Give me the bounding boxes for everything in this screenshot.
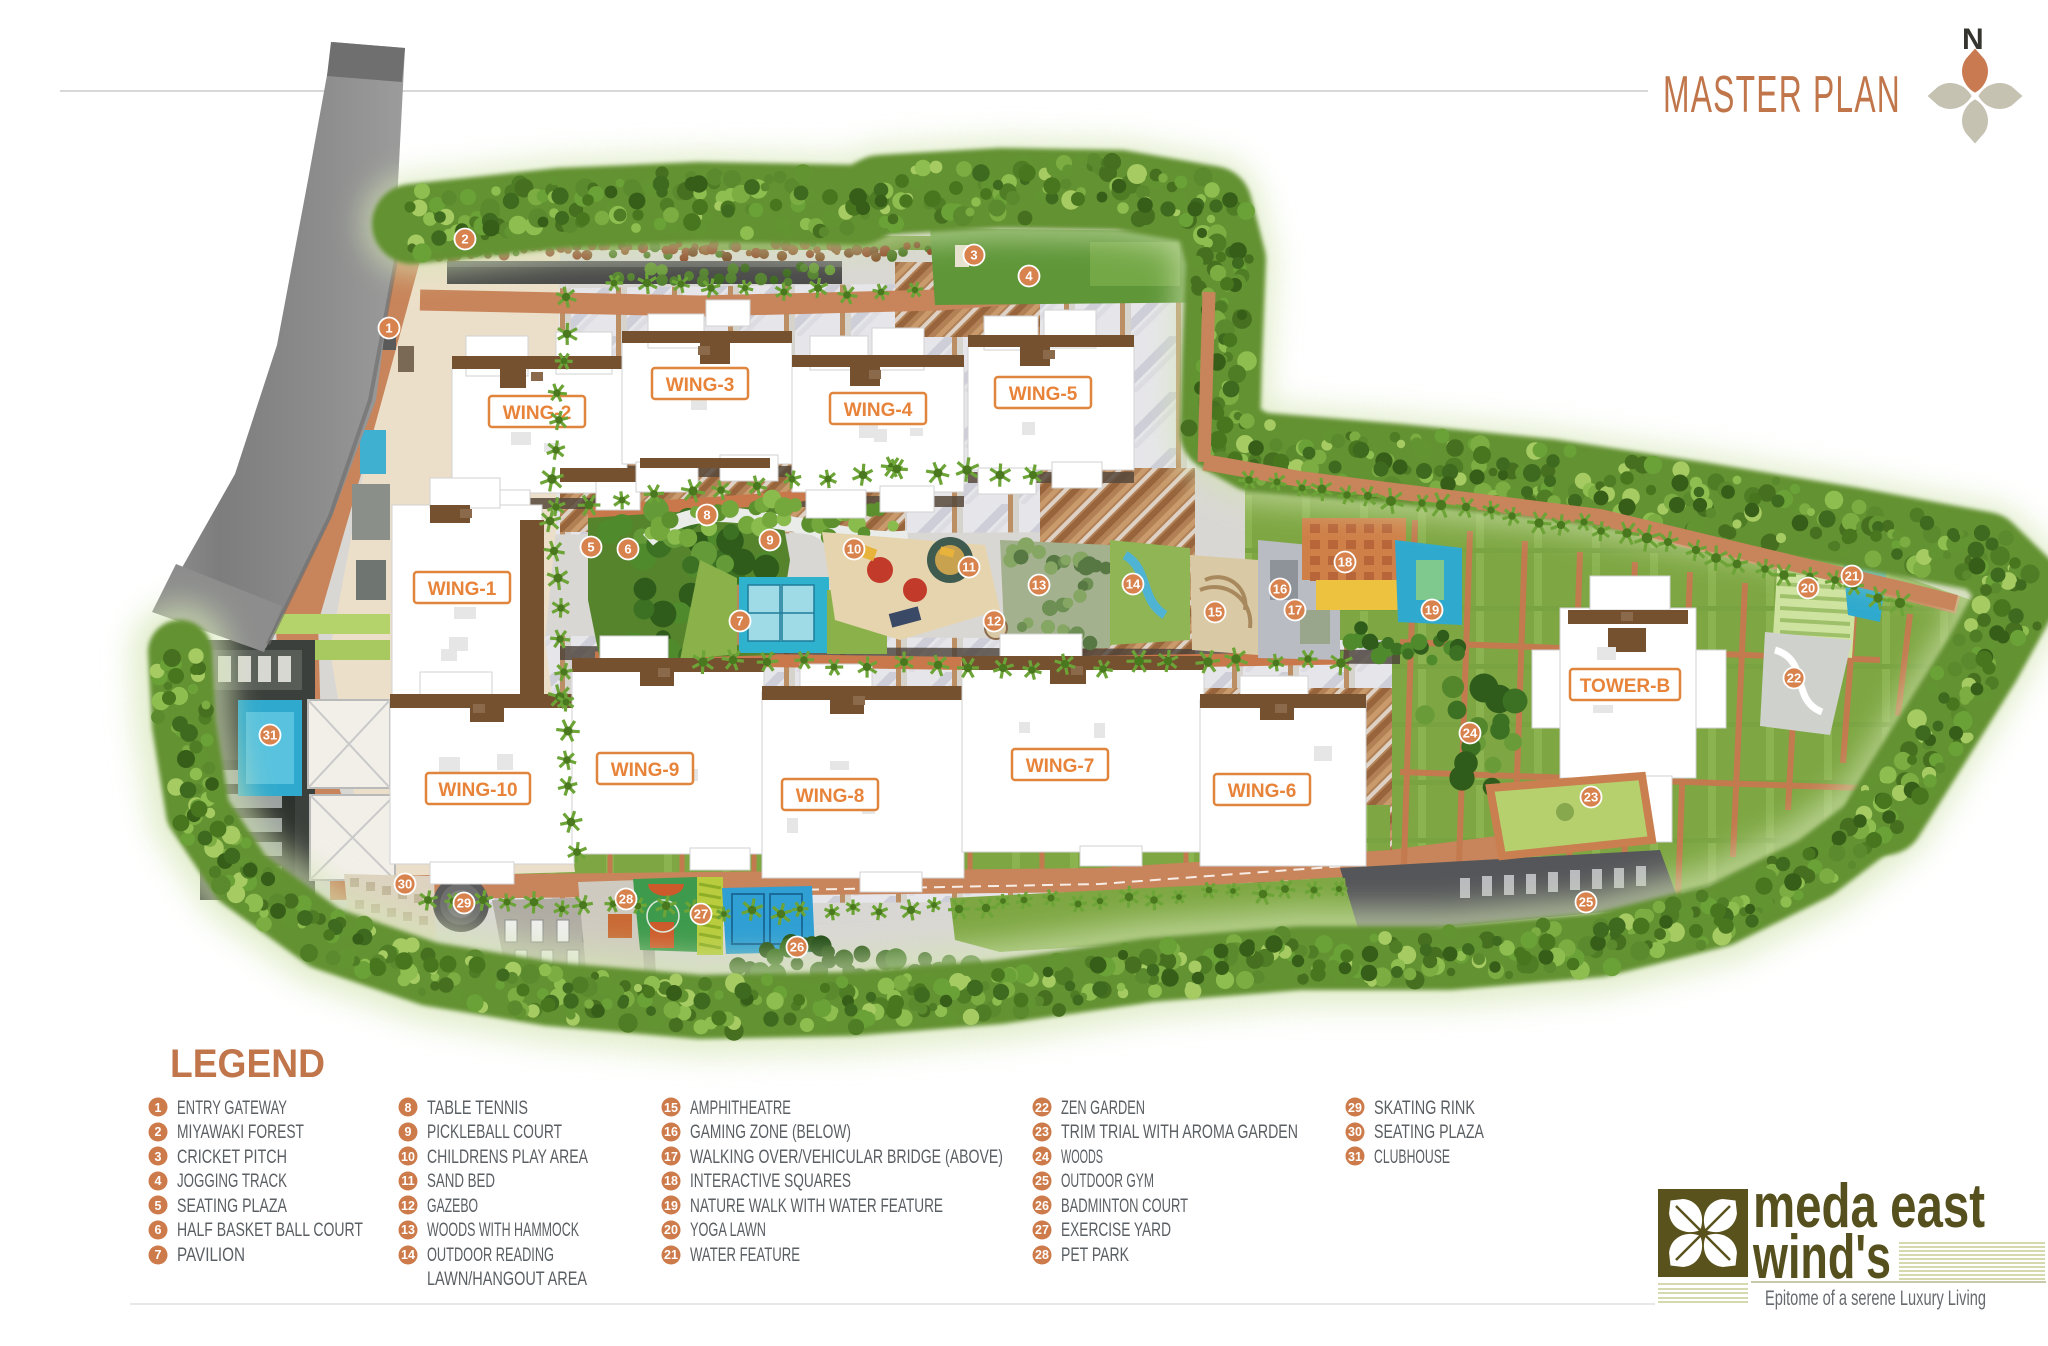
svg-text:22: 22 [1787, 671, 1801, 686]
svg-text:21: 21 [664, 1248, 678, 1262]
svg-text:CRICKET PITCH: CRICKET PITCH [177, 1146, 287, 1168]
svg-text:13: 13 [401, 1223, 415, 1237]
svg-text:19: 19 [1425, 603, 1439, 618]
svg-text:JOGGING TRACK: JOGGING TRACK [177, 1170, 287, 1192]
svg-text:26: 26 [1035, 1199, 1049, 1213]
svg-text:WING-3: WING-3 [666, 375, 735, 396]
svg-text:3: 3 [155, 1150, 162, 1164]
svg-text:ENTRY GATEWAY: ENTRY GATEWAY [177, 1097, 287, 1119]
svg-text:PET PARK: PET PARK [1061, 1244, 1129, 1266]
svg-text:AMPHITHEATRE: AMPHITHEATRE [690, 1097, 791, 1119]
svg-text:26: 26 [790, 940, 804, 955]
svg-text:15: 15 [664, 1101, 678, 1115]
svg-text:MIYAWAKI FOREST: MIYAWAKI FOREST [177, 1121, 304, 1143]
svg-text:TABLE TENNIS: TABLE TENNIS [427, 1097, 528, 1119]
svg-text:13: 13 [1032, 578, 1046, 593]
svg-text:23: 23 [1584, 790, 1598, 805]
svg-text:30: 30 [1348, 1125, 1362, 1139]
svg-text:11: 11 [401, 1174, 414, 1188]
svg-text:WOODS: WOODS [1061, 1146, 1103, 1168]
svg-text:18: 18 [664, 1174, 678, 1188]
svg-text:WING-10: WING-10 [438, 780, 517, 801]
svg-text:WOODS WITH HAMMOCK: WOODS WITH HAMMOCK [427, 1219, 579, 1241]
svg-text:NATURE WALK WITH WATER FEATURE: NATURE WALK WITH WATER FEATURE [690, 1195, 943, 1217]
svg-text:28: 28 [1035, 1248, 1049, 1262]
svg-text:OUTDOOR READING: OUTDOOR READING [427, 1244, 554, 1266]
svg-text:3: 3 [970, 248, 977, 263]
svg-text:21: 21 [1845, 569, 1859, 584]
svg-text:25: 25 [1579, 895, 1593, 910]
svg-text:7: 7 [155, 1248, 162, 1262]
svg-text:WING-9: WING-9 [611, 760, 680, 781]
svg-text:OUTDOOR GYM: OUTDOOR GYM [1061, 1170, 1154, 1192]
svg-text:20: 20 [664, 1223, 678, 1237]
svg-text:8: 8 [405, 1101, 412, 1115]
svg-text:MASTER PLAN: MASTER PLAN [1663, 66, 1901, 124]
svg-text:29: 29 [457, 896, 471, 911]
svg-text:31: 31 [1348, 1150, 1362, 1164]
svg-text:31: 31 [263, 728, 277, 743]
svg-text:24: 24 [1463, 726, 1478, 741]
svg-text:14: 14 [401, 1248, 415, 1262]
svg-text:WING-6: WING-6 [1228, 781, 1297, 802]
svg-text:4: 4 [1025, 269, 1033, 284]
svg-text:LEGEND: LEGEND [170, 1042, 325, 1086]
svg-text:GAZEBO: GAZEBO [427, 1195, 478, 1217]
svg-text:24: 24 [1035, 1150, 1049, 1164]
svg-text:9: 9 [766, 533, 773, 548]
svg-text:WING-4: WING-4 [844, 400, 913, 421]
svg-text:22: 22 [1035, 1101, 1049, 1115]
svg-text:29: 29 [1348, 1101, 1362, 1115]
svg-text:SAND BED: SAND BED [427, 1170, 495, 1192]
svg-text:6: 6 [624, 542, 631, 557]
svg-text:Epitome of a serene Luxury Li: Epitome of a serene Luxury Living [1765, 1287, 1986, 1310]
svg-text:2: 2 [155, 1125, 162, 1139]
svg-text:10: 10 [847, 542, 861, 557]
svg-text:5: 5 [155, 1199, 162, 1213]
svg-text:23: 23 [1035, 1125, 1049, 1139]
svg-text:9: 9 [405, 1125, 412, 1139]
svg-text:WING-7: WING-7 [1026, 756, 1095, 777]
svg-text:YOGA LAWN: YOGA LAWN [690, 1219, 766, 1241]
svg-text:10: 10 [401, 1150, 415, 1164]
svg-text:1: 1 [385, 321, 392, 336]
svg-text:11: 11 [962, 560, 976, 575]
svg-text:EXERCISE YARD: EXERCISE YARD [1061, 1219, 1171, 1241]
svg-text:27: 27 [1035, 1223, 1049, 1237]
svg-text:25: 25 [1035, 1174, 1049, 1188]
svg-text:27: 27 [694, 907, 708, 922]
svg-text:CLUBHOUSE: CLUBHOUSE [1374, 1146, 1450, 1168]
svg-text:12: 12 [987, 614, 1001, 629]
svg-text:PAVILION: PAVILION [177, 1244, 245, 1266]
svg-text:HALF BASKET BALL COURT: HALF BASKET BALL COURT [177, 1219, 363, 1241]
svg-text:19: 19 [664, 1199, 678, 1213]
svg-text:SKATING RINK: SKATING RINK [1374, 1097, 1475, 1119]
svg-text:BADMINTON COURT: BADMINTON COURT [1061, 1195, 1188, 1217]
svg-text:SEATING PLAZA: SEATING PLAZA [1374, 1121, 1484, 1143]
svg-text:30: 30 [398, 877, 412, 892]
svg-text:CHILDRENS PLAY AREA: CHILDRENS PLAY AREA [427, 1146, 588, 1168]
svg-text:17: 17 [664, 1150, 678, 1164]
svg-text:6: 6 [155, 1223, 162, 1237]
svg-text:16: 16 [1273, 582, 1287, 597]
svg-text:4: 4 [155, 1174, 162, 1188]
svg-text:LAWN/HANGOUT AREA: LAWN/HANGOUT AREA [427, 1268, 587, 1290]
svg-text:TRIM TRIAL WITH AROMA GARDEN: TRIM TRIAL WITH AROMA GARDEN [1061, 1121, 1298, 1143]
svg-text:18: 18 [1338, 555, 1352, 570]
svg-text:15: 15 [1208, 605, 1222, 620]
svg-text:20: 20 [1801, 581, 1815, 596]
svg-text:WING-8: WING-8 [796, 786, 865, 807]
svg-text:TOWER-B: TOWER-B [1580, 676, 1670, 697]
svg-text:WATER FEATURE: WATER FEATURE [690, 1244, 800, 1266]
svg-text:WALKING OVER/VEHICULAR BRIDGE: WALKING OVER/VEHICULAR BRIDGE (ABOVE) [690, 1146, 1003, 1168]
svg-text:16: 16 [664, 1125, 678, 1139]
svg-text:PICKLEBALL COURT: PICKLEBALL COURT [427, 1121, 562, 1143]
svg-text:12: 12 [401, 1199, 415, 1213]
svg-text:7: 7 [736, 614, 743, 629]
svg-text:17: 17 [1288, 603, 1302, 618]
svg-text:GAMING ZONE (BELOW): GAMING ZONE (BELOW) [690, 1121, 851, 1143]
svg-text:8: 8 [703, 508, 710, 523]
svg-text:28: 28 [619, 892, 633, 907]
svg-text:2: 2 [461, 232, 468, 247]
svg-text:14: 14 [1126, 577, 1141, 592]
svg-text:INTERACTIVE SQUARES: INTERACTIVE SQUARES [690, 1170, 851, 1192]
svg-text:SEATING PLAZA: SEATING PLAZA [177, 1195, 287, 1217]
svg-text:1: 1 [155, 1101, 162, 1115]
svg-text:WING-5: WING-5 [1009, 384, 1078, 405]
svg-text:WING-1: WING-1 [428, 579, 497, 600]
svg-text:ZEN GARDEN: ZEN GARDEN [1061, 1097, 1145, 1119]
svg-text:5: 5 [587, 540, 594, 555]
